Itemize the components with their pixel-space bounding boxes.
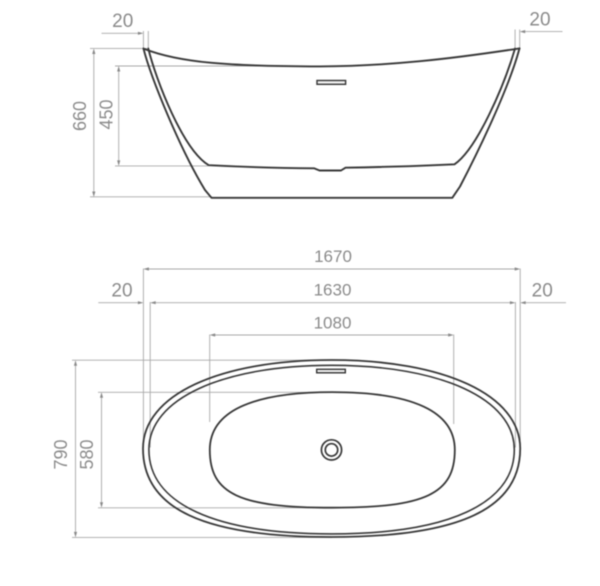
svg-text:1080: 1080 [314,314,352,333]
svg-text:20: 20 [112,11,133,32]
svg-text:790: 790 [51,439,71,469]
svg-text:20: 20 [532,281,553,302]
svg-text:580: 580 [77,439,97,469]
svg-text:660: 660 [70,101,90,131]
svg-text:450: 450 [97,99,117,129]
svg-text:1670: 1670 [314,247,352,266]
svg-text:20: 20 [111,281,132,302]
svg-text:1630: 1630 [314,281,352,300]
svg-text:20: 20 [529,10,550,31]
